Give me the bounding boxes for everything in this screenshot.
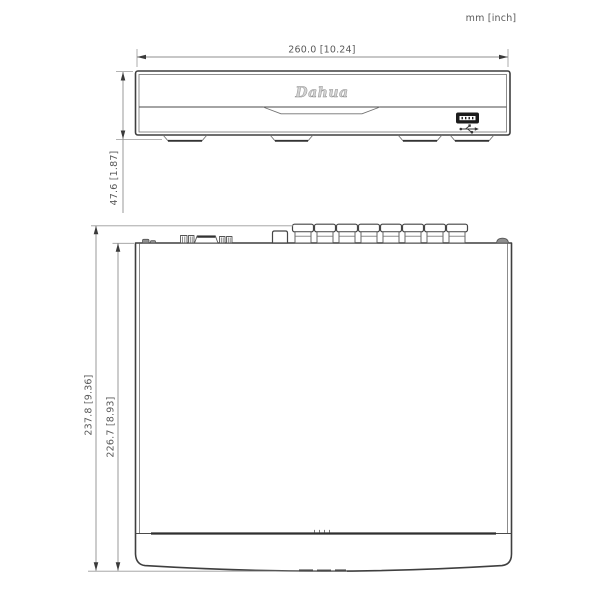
dahua-logo: Dahua xyxy=(294,85,348,101)
bnc-connector xyxy=(359,224,380,243)
bnc-connector xyxy=(381,224,402,243)
bnc-connector xyxy=(425,224,446,243)
usb-pin xyxy=(472,117,473,119)
front-panel-outline xyxy=(136,71,511,135)
arrow-down-icon xyxy=(94,562,99,571)
front-view: 260.0 [10.24] 47.6 [1.87] Dahua xyxy=(109,45,510,214)
vga-connector xyxy=(195,236,219,243)
arrow-up-icon xyxy=(94,226,99,235)
audio-connector xyxy=(189,236,195,244)
top-overall-depth-label: 237.8 [9.36] xyxy=(84,374,95,435)
audio-connector xyxy=(181,236,188,244)
front-panel-body: Dahua xyxy=(136,71,511,141)
top-view: 237.8 [9.36] 226.7 [8.93] xyxy=(84,224,512,571)
bnc-connector xyxy=(315,224,336,243)
front-height-label: 47.6 [1.87] xyxy=(109,151,120,206)
dimension-drawing: mm [inch] 260.0 [10.24] 47.6 [1.87] xyxy=(0,0,600,600)
top-view-body xyxy=(136,243,512,571)
arrow-up-icon xyxy=(116,243,121,252)
bnc-connector xyxy=(337,224,358,243)
arrow-right-icon xyxy=(499,55,508,60)
connector-bump xyxy=(151,241,156,243)
usb-pin xyxy=(465,117,466,119)
arrow-up-icon xyxy=(121,72,126,81)
top-body-depth-dimension: 226.7 [8.93] xyxy=(106,243,135,571)
small-connector xyxy=(220,237,226,244)
connector-bump xyxy=(497,238,509,243)
usb-port-icon xyxy=(456,113,479,124)
arrow-down-icon xyxy=(121,131,126,140)
power-connector xyxy=(273,231,288,243)
arrow-down-icon xyxy=(116,562,121,571)
connector-bump xyxy=(143,239,150,243)
top-body-depth-label: 226.7 [8.93] xyxy=(106,396,117,457)
rear-connectors xyxy=(143,224,509,243)
arrow-left-icon xyxy=(137,55,146,60)
bnc-connector xyxy=(293,224,314,243)
bnc-connector xyxy=(447,224,468,243)
usb-pin xyxy=(469,117,470,119)
front-width-label: 260.0 [10.24] xyxy=(288,45,355,56)
bnc-connector xyxy=(403,224,424,243)
small-connector xyxy=(227,237,233,244)
usb-pin xyxy=(462,117,463,119)
front-feet xyxy=(163,135,494,141)
front-width-dimension: 260.0 [10.24] xyxy=(137,45,508,68)
units-label: mm [inch] xyxy=(466,13,517,24)
dimension-drawing-page: mm [inch] 260.0 [10.24] 47.6 [1.87] xyxy=(0,0,600,600)
